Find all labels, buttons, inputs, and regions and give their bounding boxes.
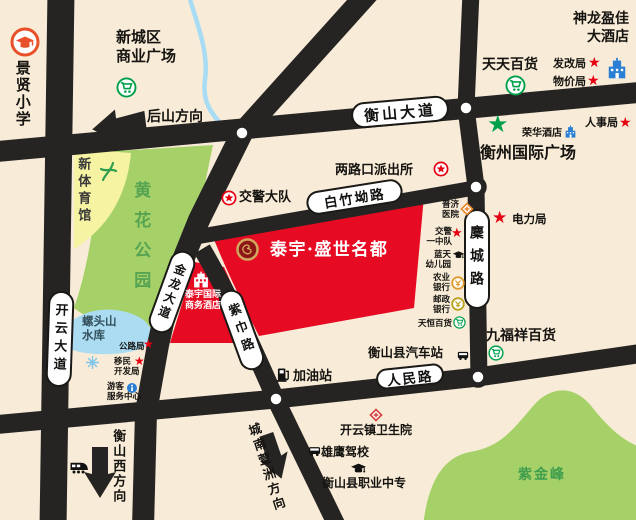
- police-badge-icon: [433, 161, 449, 177]
- poi-tiantian-baihuo: 天天百货: [482, 56, 538, 74]
- road-hengshan-dadao: [0, 92, 636, 152]
- poi-taiyu-hotel: 泰宇国际商务酒店: [180, 289, 226, 312]
- building-icon: [564, 125, 577, 138]
- school-cap-icon: [350, 462, 367, 475]
- poi-xinchengqu-plaza: 新城区商业广场: [116, 29, 176, 67]
- poi-jiaojing-dadui: 交警大队: [239, 189, 291, 205]
- junction-renmin-zijin: [268, 391, 284, 407]
- star-icon: ★: [588, 55, 601, 69]
- green-star-icon: ★: [487, 113, 509, 137]
- junction-hengshan-micheng: [458, 100, 474, 116]
- poi-jingxian-school: 景贤小学: [12, 60, 31, 128]
- poi-tianheng-baihuo: 天恒百货: [418, 318, 452, 329]
- poi-lantian-kindergarten: 蓝天幼儿园: [424, 249, 451, 269]
- poi-hengzhou-plaza: 衡州国际广场: [480, 144, 576, 164]
- hospital-icon: [369, 408, 383, 422]
- road-pill-micheng-lu: 麇城路: [464, 209, 490, 309]
- poi-fagaiju: 发改局: [553, 58, 586, 72]
- poi-gongluju: 公路局: [119, 341, 145, 351]
- shopping-cart-icon: [488, 345, 504, 361]
- junction-renmin-micheng: [470, 369, 486, 385]
- train-icon: [69, 461, 89, 474]
- hotel-building-icon: [192, 271, 210, 288]
- shopping-cart-icon: [116, 77, 137, 98]
- project-seal-icon: [236, 238, 259, 261]
- junction-houshan: [234, 125, 250, 141]
- school-badge-icon: [10, 27, 40, 57]
- kindergarten-cap-icon: [452, 250, 465, 260]
- star-icon: ★: [587, 73, 600, 87]
- bus-icon: [457, 350, 469, 361]
- bank-icon: [451, 276, 465, 290]
- poi-ronghua-hotel: 荣华酒店: [522, 128, 562, 141]
- junction-baizhuao-micheng: [468, 179, 484, 195]
- poi-dianliju: 电力局: [512, 213, 547, 227]
- shopping-cart-icon: [505, 75, 526, 96]
- poi-xiongying-jiaxiao: 雄鹰驾校: [321, 445, 369, 460]
- poi-shenlong-hotel: 神龙盈佳大酒店: [543, 10, 629, 45]
- direction-hengshan-west: 衡山西方向: [110, 429, 126, 504]
- area-new-gymnasium: 新体育馆: [75, 157, 91, 225]
- bus-icon: [308, 445, 321, 457]
- hospital-icon: [460, 202, 474, 216]
- star-icon: ★: [492, 209, 507, 226]
- road-kaiyun-dadao: [53, 0, 61, 520]
- poi-youzheng-bank: 邮政银行: [432, 294, 450, 314]
- building-icon: [606, 57, 628, 79]
- police-badge-icon: [221, 190, 237, 206]
- gymnasium-icon: [97, 160, 119, 182]
- star-icon: ★: [619, 115, 632, 129]
- star-icon: ★: [451, 226, 463, 239]
- bank-icon: [451, 297, 465, 311]
- area-luotoushan-reservoir: 螺头山水库: [82, 315, 117, 344]
- water-icon: [85, 355, 100, 370]
- area-zijinfeng: 紫金峰: [518, 466, 566, 484]
- star-icon: ★: [134, 355, 145, 367]
- road-pill-kaiyun-dadao: 开云大道: [45, 291, 74, 388]
- poi-zhiye-zhongzhuan: 衡山县职业中专: [322, 476, 406, 491]
- poi-puji-hospital: 普济医院: [434, 199, 459, 219]
- poi-jiaojing-yizhongdui: 交警一中队: [425, 226, 452, 246]
- star-icon: ★: [143, 338, 154, 350]
- zijinfeng-hill-area: [423, 390, 636, 520]
- poi-renshiju: 人事局: [585, 117, 618, 131]
- poi-lianglukou-police: 两路口派出所: [335, 162, 413, 178]
- poi-jiufuxiang-baihuo: 九福祥百货: [486, 327, 556, 345]
- direction-houshan: 后山方向: [147, 108, 203, 126]
- gas-pump-icon: [276, 367, 291, 382]
- tourist-info-icon: [127, 383, 137, 393]
- shopping-cart-icon: [453, 316, 466, 329]
- poi-weishengyuan: 开云镇卫生院: [340, 423, 412, 438]
- area-huanghua-park: 黄花公园: [130, 181, 151, 301]
- location-map: 衡山大道 白竹坳路 人民路 开云大道 金龙大道 紫巾路 麇城路 ★ ★ ★ ★ …: [0, 0, 636, 520]
- poi-jiayouzhan: 加油站: [293, 368, 332, 384]
- poi-nongye-bank: 农业银行: [432, 272, 450, 292]
- poi-qichezhan: 衡山县汽车站: [368, 346, 443, 362]
- poi-wujiaju: 物价局: [553, 76, 586, 90]
- project-name: 泰宇·盛世名都: [270, 240, 388, 261]
